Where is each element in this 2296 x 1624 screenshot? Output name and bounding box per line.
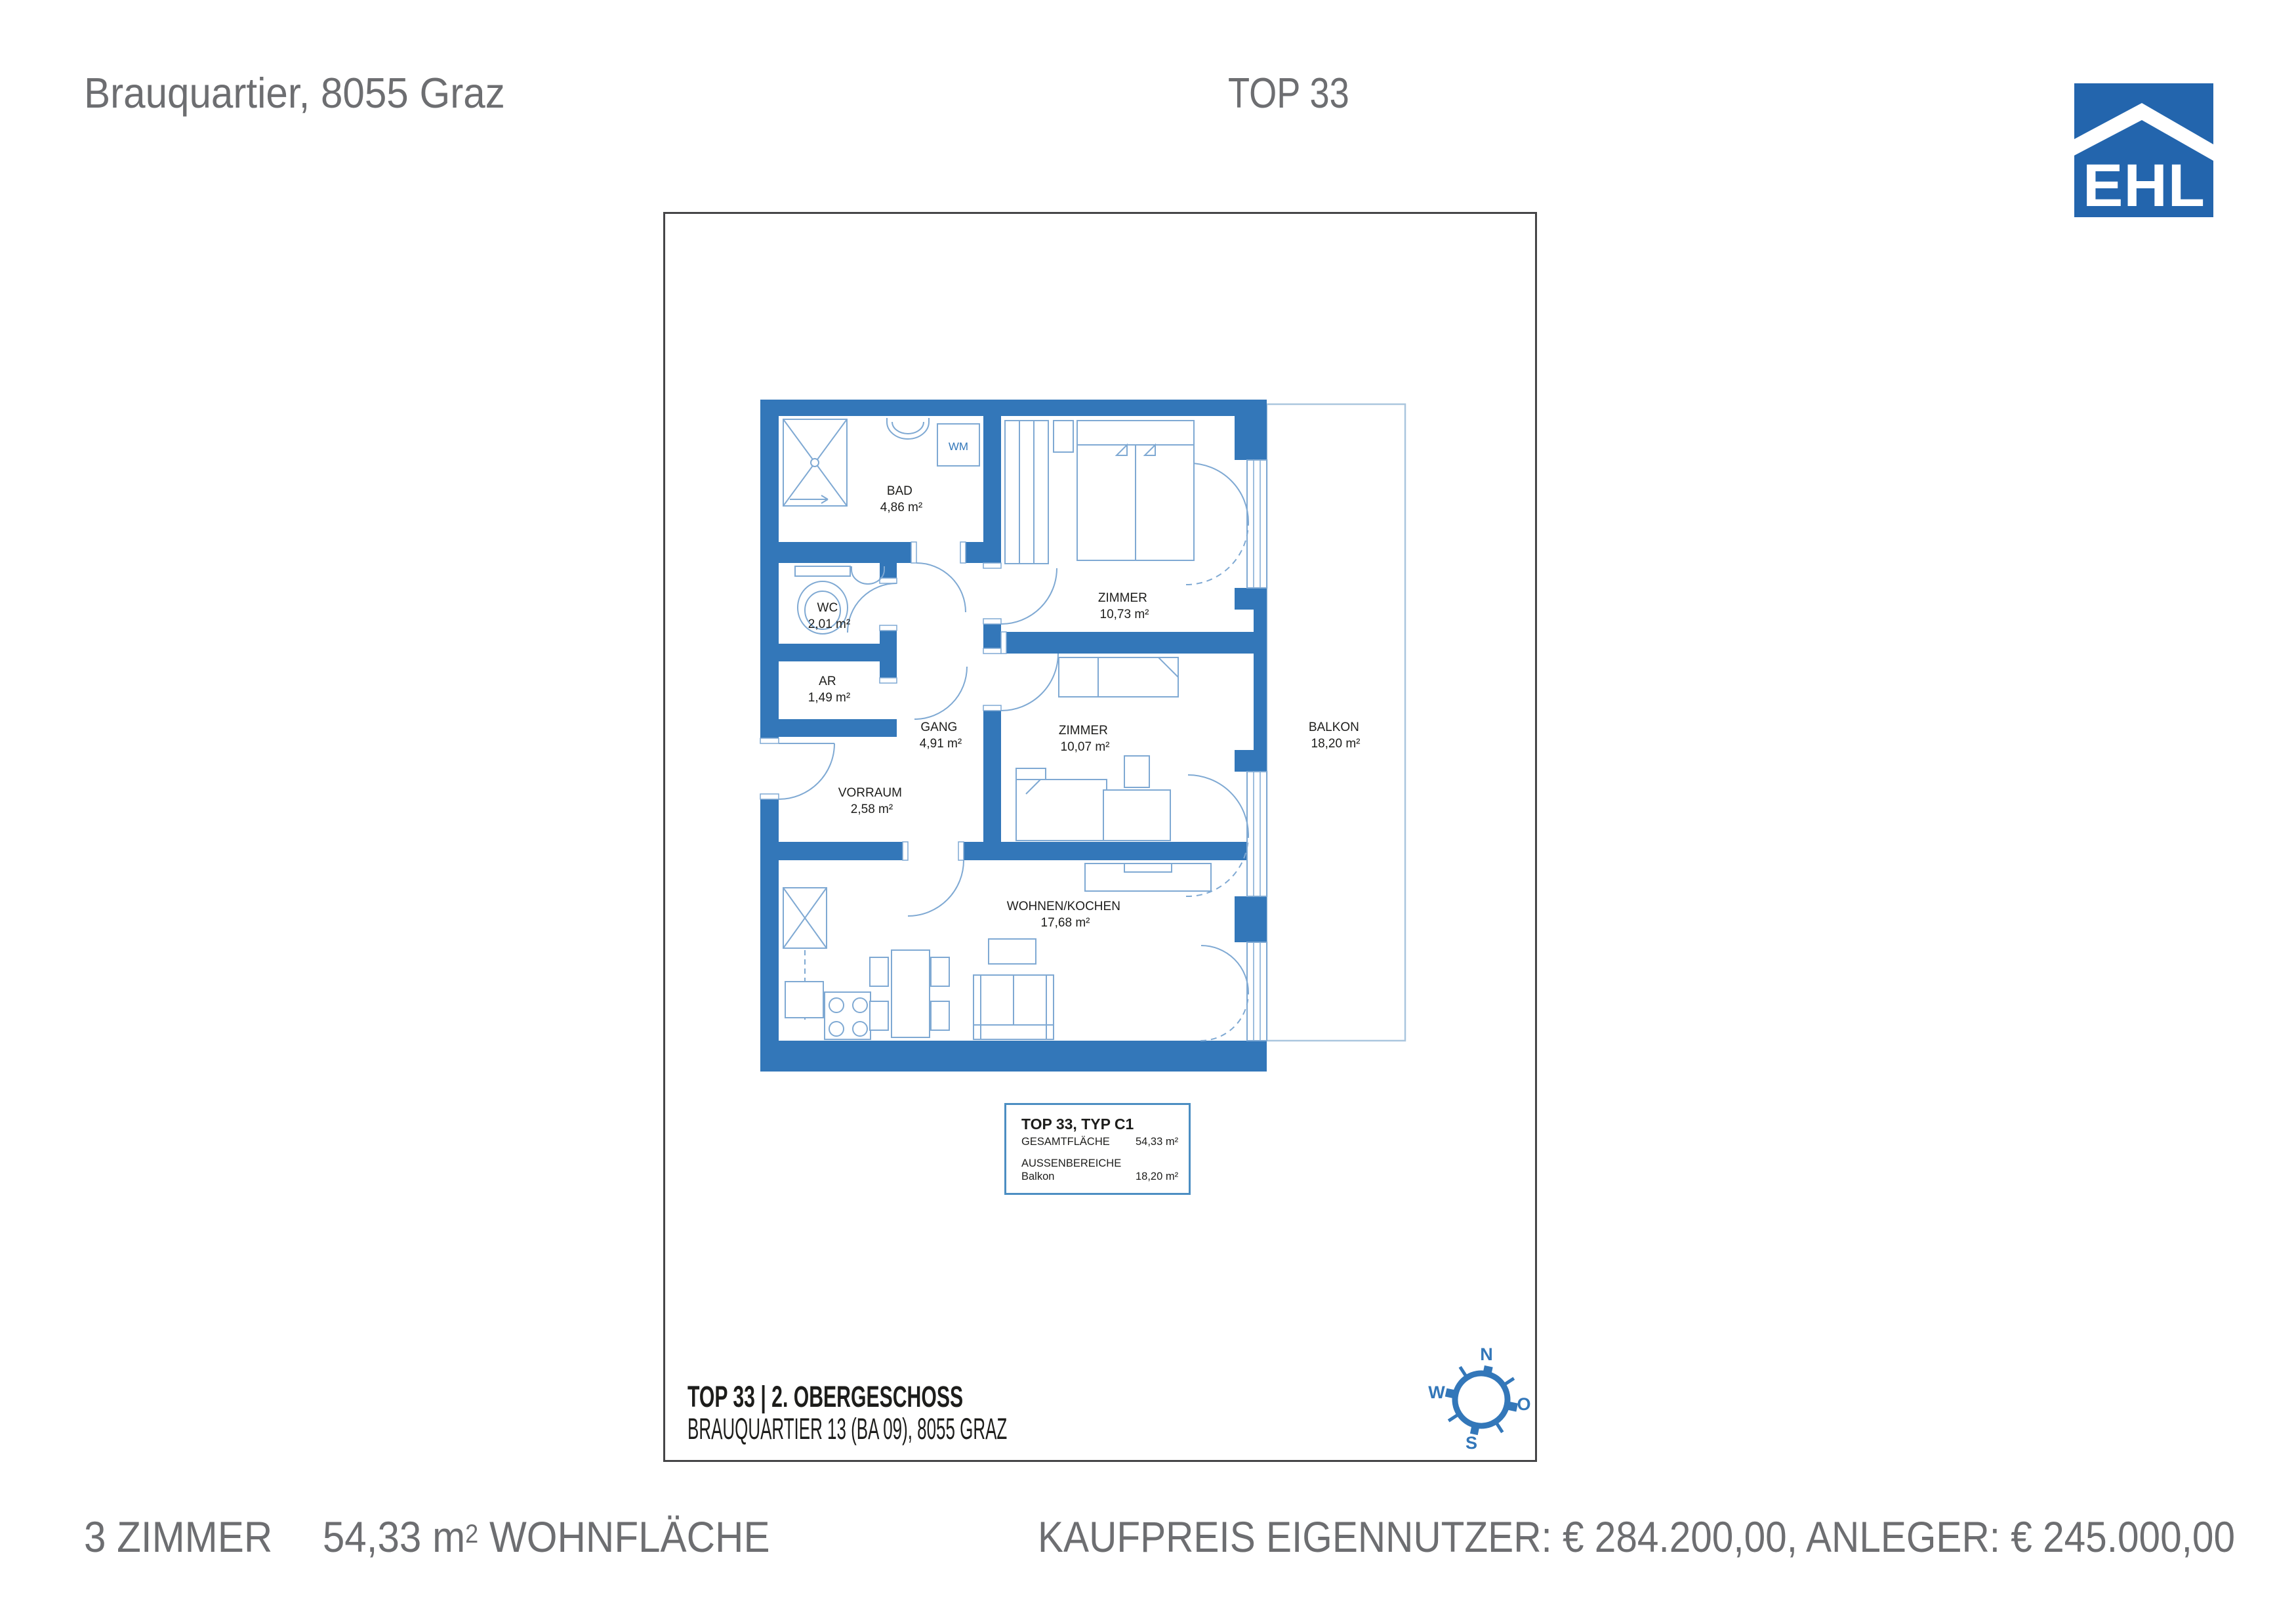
caption-line2: BRAUQUARTIER 13 (BA 09), 8055 GRAZ	[687, 1413, 1007, 1445]
wardrobe2-icon	[1059, 657, 1178, 697]
footer-area-label: WOHNFLÄCHE	[489, 1512, 770, 1561]
footer-area-sup: 2	[465, 1520, 478, 1549]
compass-o: O	[1517, 1394, 1530, 1414]
dining-set-icon	[870, 950, 949, 1037]
total-area-label: GESAMTFLÄCHE	[1021, 1136, 1110, 1148]
room-label-wohnen: WOHNEN/KOCHEN 17,68 m²	[1007, 900, 1124, 930]
caption-line1: TOP 33 | 2. OBERGESCHOSS	[687, 1381, 963, 1413]
room-label-bad: BAD 4,86 m²	[880, 484, 922, 514]
shower-icon	[783, 419, 847, 506]
footer-area-value: 54,33	[323, 1512, 421, 1561]
coffee-table	[989, 939, 1036, 964]
footer-area-unit: m	[432, 1512, 465, 1561]
bathroom-sink-icon	[887, 418, 929, 439]
logo-text: EHL	[2083, 152, 2205, 217]
compass-s: S	[1466, 1433, 1477, 1453]
kitchen-sink	[785, 982, 823, 1018]
floor-plan: BAD 4,86 m² WC 2,01 m² AR 1,49 m² GANG 4…	[665, 214, 1535, 1460]
room-label-zimmer1: ZIMMER 10,73 m²	[1098, 591, 1151, 621]
desk	[1103, 790, 1170, 841]
desk-chair	[1124, 756, 1149, 787]
balkon-label: Balkon	[1021, 1171, 1054, 1183]
compass-n: N	[1480, 1344, 1493, 1364]
kitchen-tall-unit-icon	[783, 888, 827, 948]
sideboard-icon	[1085, 864, 1211, 891]
single-bed-icon	[1016, 768, 1107, 841]
footer-rooms: 3 ZIMMER	[84, 1512, 272, 1561]
stove-icon	[825, 992, 871, 1039]
room-label-zimmer2: ZIMMER 10,07 m²	[1059, 724, 1111, 754]
ehl-logo-icon: EHL	[2074, 83, 2213, 217]
footer-left: 3 ZIMMER54,33 m2 WOHNFLÄCHE	[84, 1512, 837, 1562]
room-label-gang: GANG 4,91 m²	[920, 720, 962, 751]
wardrobe-icon	[1005, 421, 1048, 564]
double-bed-icon	[1077, 421, 1194, 560]
compass-w: W	[1428, 1383, 1445, 1402]
ehl-logo: EHL	[2074, 83, 2213, 220]
outdoor-label: AUSSENBEREICHE	[1021, 1157, 1121, 1170]
room-label-balkon: BALKON 18,20 m²	[1309, 720, 1363, 751]
room-label-ar: AR 1,49 m²	[808, 675, 850, 705]
plan-caption: TOP 33 | 2. OBERGESCHOSS BRAUQUARTIER 13…	[687, 1381, 1241, 1445]
nightstand	[1054, 421, 1073, 452]
floorplan-sheet: Brauquartier, 8055 Graz TOP 33 EHL	[0, 0, 2296, 1624]
room-label-vorraum: VORRAUM 2,58 m²	[838, 786, 905, 816]
plan-frame: BAD 4,86 m² WC 2,01 m² AR 1,49 m² GANG 4…	[663, 212, 1537, 1462]
unit-title: TOP 33	[1228, 68, 1374, 117]
total-area-value: 54,33 m²	[1136, 1136, 1178, 1148]
info-title: TOP 33, TYP C1	[1021, 1115, 1134, 1133]
sofa-icon	[974, 975, 1054, 1039]
footer-price: KAUFPREIS EIGENNUTZER: € 284.200,00, ANL…	[1038, 1512, 2296, 1562]
project-address: Brauquartier, 8055 Graz	[84, 68, 539, 117]
unit-info-box: TOP 33, TYP C1 GESAMTFLÄCHE 54,33 m² AUS…	[1004, 1103, 1191, 1195]
balkon-value: 18,20 m²	[1136, 1171, 1178, 1183]
wm-label: WM	[949, 440, 968, 453]
compass-icon: N O S W	[1425, 1342, 1537, 1453]
